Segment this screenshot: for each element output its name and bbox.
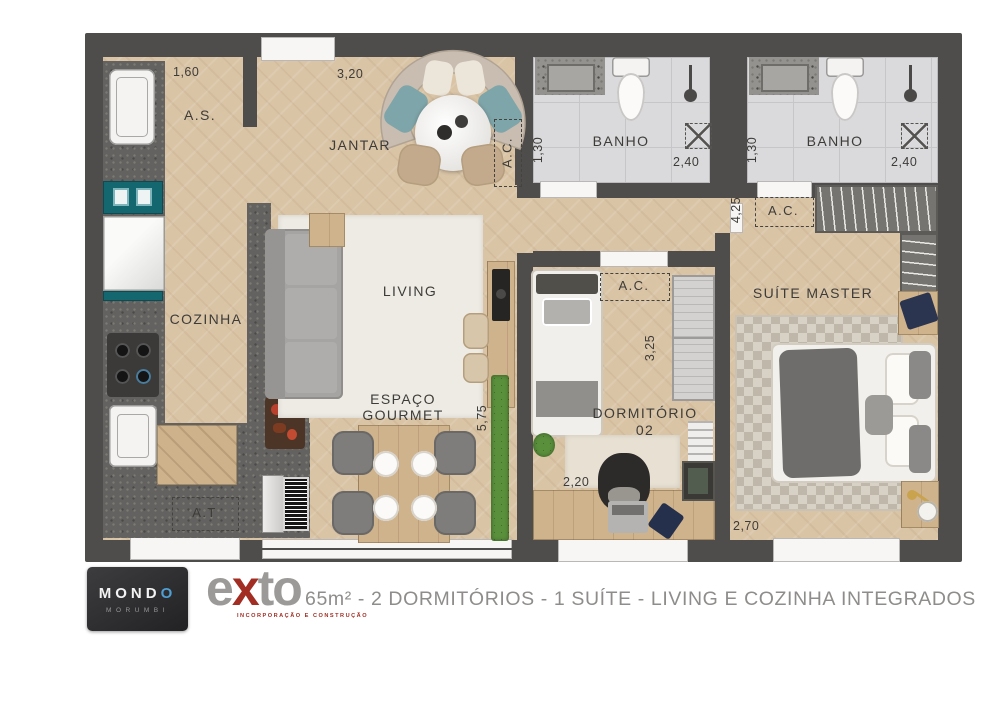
gourmet-chair-4 — [434, 491, 476, 535]
room-label-living: LIVING — [360, 283, 460, 299]
exto-logo-sub: INCORPORAÇÃO E CONSTRUÇÃO — [237, 613, 368, 619]
room-label-as: A.S. — [150, 107, 250, 123]
banho2-shower-icon — [909, 65, 912, 93]
dorm-dark-unit — [682, 461, 715, 501]
suite-bed — [773, 345, 935, 481]
dorm-laptop-icon — [608, 501, 648, 533]
room-label-gourmet-line1: ESPAÇO — [343, 391, 463, 407]
washer-icon — [103, 181, 163, 214]
dorm-door — [600, 251, 668, 267]
dim-banho2-width: 2,40 — [891, 155, 917, 169]
pouf-1 — [463, 313, 489, 349]
exto-logo: exto — [206, 563, 301, 613]
ac-label-dorm: A.C. — [600, 278, 668, 293]
room-label-cozinha: COZINHA — [156, 311, 256, 327]
room-label-suite: SUÍTE MASTER — [743, 285, 883, 301]
living-sofa — [265, 229, 343, 399]
window-top — [261, 37, 335, 61]
kitchen-sink-icon — [109, 405, 157, 467]
dim-dorm-height: 3,25 — [643, 335, 657, 361]
window-bottom-suite — [773, 538, 900, 562]
cooktop-icon — [107, 333, 159, 397]
ac-label-suite: A.C. — [755, 203, 812, 218]
wall-living-dorm — [517, 253, 533, 540]
banho2-vanity — [749, 57, 819, 95]
window-bottom-kitchen — [130, 536, 240, 560]
room-label-dorm-line2: 02 — [580, 422, 710, 438]
mondo-logo-sub: MORUMBI — [106, 607, 169, 614]
at-label: A.T — [172, 505, 237, 520]
laundry-sink-icon — [109, 69, 155, 145]
plate-4 — [411, 495, 437, 521]
mondo-logo: MONDO MORUMBI — [87, 567, 188, 631]
fridge-icon — [103, 216, 165, 291]
wall-between-bathrooms — [710, 48, 747, 188]
plate-3 — [373, 495, 399, 521]
gourmet-chair-2 — [434, 431, 476, 475]
grill-icon — [262, 475, 308, 533]
room-label-banho1: BANHO — [571, 133, 671, 149]
dorm-plant — [533, 433, 555, 457]
dim-living-height: 5,75 — [475, 405, 489, 431]
banho1-door — [540, 181, 597, 198]
cabinet-teal — [103, 291, 163, 301]
dim-as-width: 1,60 — [173, 65, 199, 79]
gourmet-chair-1 — [332, 431, 374, 475]
ac-label-jantar: A.C. — [500, 131, 515, 175]
banho2-door — [757, 181, 812, 198]
vertical-garden — [491, 375, 509, 541]
banho1-drain-icon — [685, 123, 712, 149]
dim-jantar-width: 3,20 — [337, 67, 363, 81]
banho2-drain-icon — [901, 123, 928, 149]
wall-dorm-suite — [715, 233, 730, 540]
dim-banho2-depth: 1,30 — [745, 137, 759, 163]
mondo-logo-name: MONDO — [99, 585, 177, 602]
suite-closet-top — [815, 185, 938, 233]
plate-2 — [411, 451, 437, 477]
dim-banho1-width: 2,40 — [673, 155, 699, 169]
pouf-2 — [463, 353, 489, 383]
room-label-gourmet-line2: GOURMET — [343, 407, 463, 423]
cutting-board — [157, 425, 237, 485]
suite-lamp-shade — [917, 501, 938, 522]
banho1-vanity — [535, 57, 605, 95]
tv-icon — [492, 269, 510, 321]
plan-caption: 65m² - 2 DORMITÓRIOS - 1 SUÍTE - LIVING … — [305, 588, 976, 611]
window-bottom-dorm — [558, 538, 688, 562]
plate-1 — [373, 451, 399, 477]
dim-suite-hall: 4,25 — [729, 197, 743, 223]
dim-banho1-depth: 1,30 — [531, 137, 545, 163]
dim-dorm-width: 2,20 — [563, 475, 589, 489]
dorm-wardrobe — [672, 275, 715, 401]
room-label-jantar: JANTAR — [310, 137, 410, 153]
room-label-banho2: BANHO — [785, 133, 885, 149]
gourmet-chair-3 — [332, 491, 374, 535]
side-table — [309, 213, 345, 247]
floorplan: A.C. A.C. A.C. A.T A.S. JANTAR COZINHA L… — [85, 33, 962, 562]
dim-suite-width: 2,70 — [733, 519, 759, 533]
room-label-dorm-line1: DORMITÓRIO — [580, 405, 710, 421]
banho1-shower-icon — [689, 65, 692, 93]
